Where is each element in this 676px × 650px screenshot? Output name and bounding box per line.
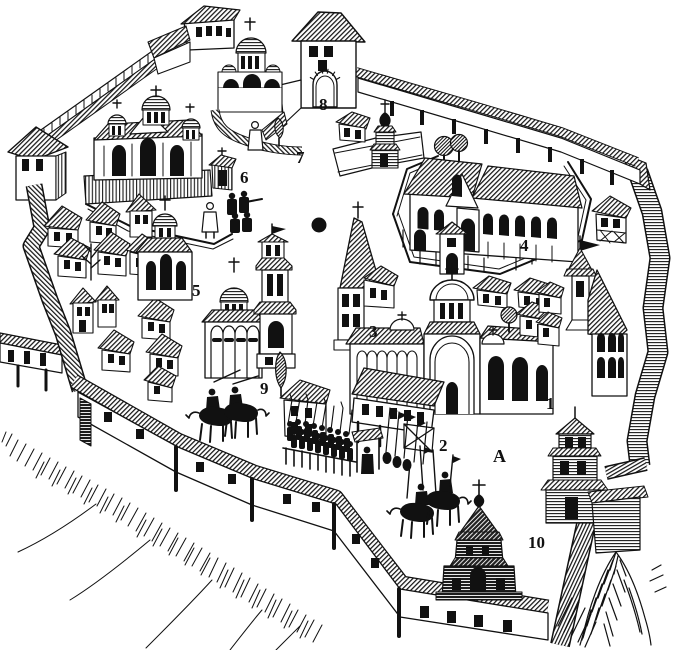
- svg-text:1: 1: [546, 394, 555, 413]
- svg-text:A: A: [493, 446, 506, 466]
- svg-text:7: 7: [296, 148, 305, 167]
- svg-text:8: 8: [319, 95, 328, 114]
- svg-text:5: 5: [192, 281, 201, 300]
- svg-text:3: 3: [369, 322, 378, 341]
- svg-text:2: 2: [439, 436, 448, 455]
- svg-text:4: 4: [520, 236, 529, 255]
- svg-text:6: 6: [240, 168, 249, 187]
- svg-text:10: 10: [528, 533, 545, 552]
- svg-text:9: 9: [260, 379, 269, 398]
